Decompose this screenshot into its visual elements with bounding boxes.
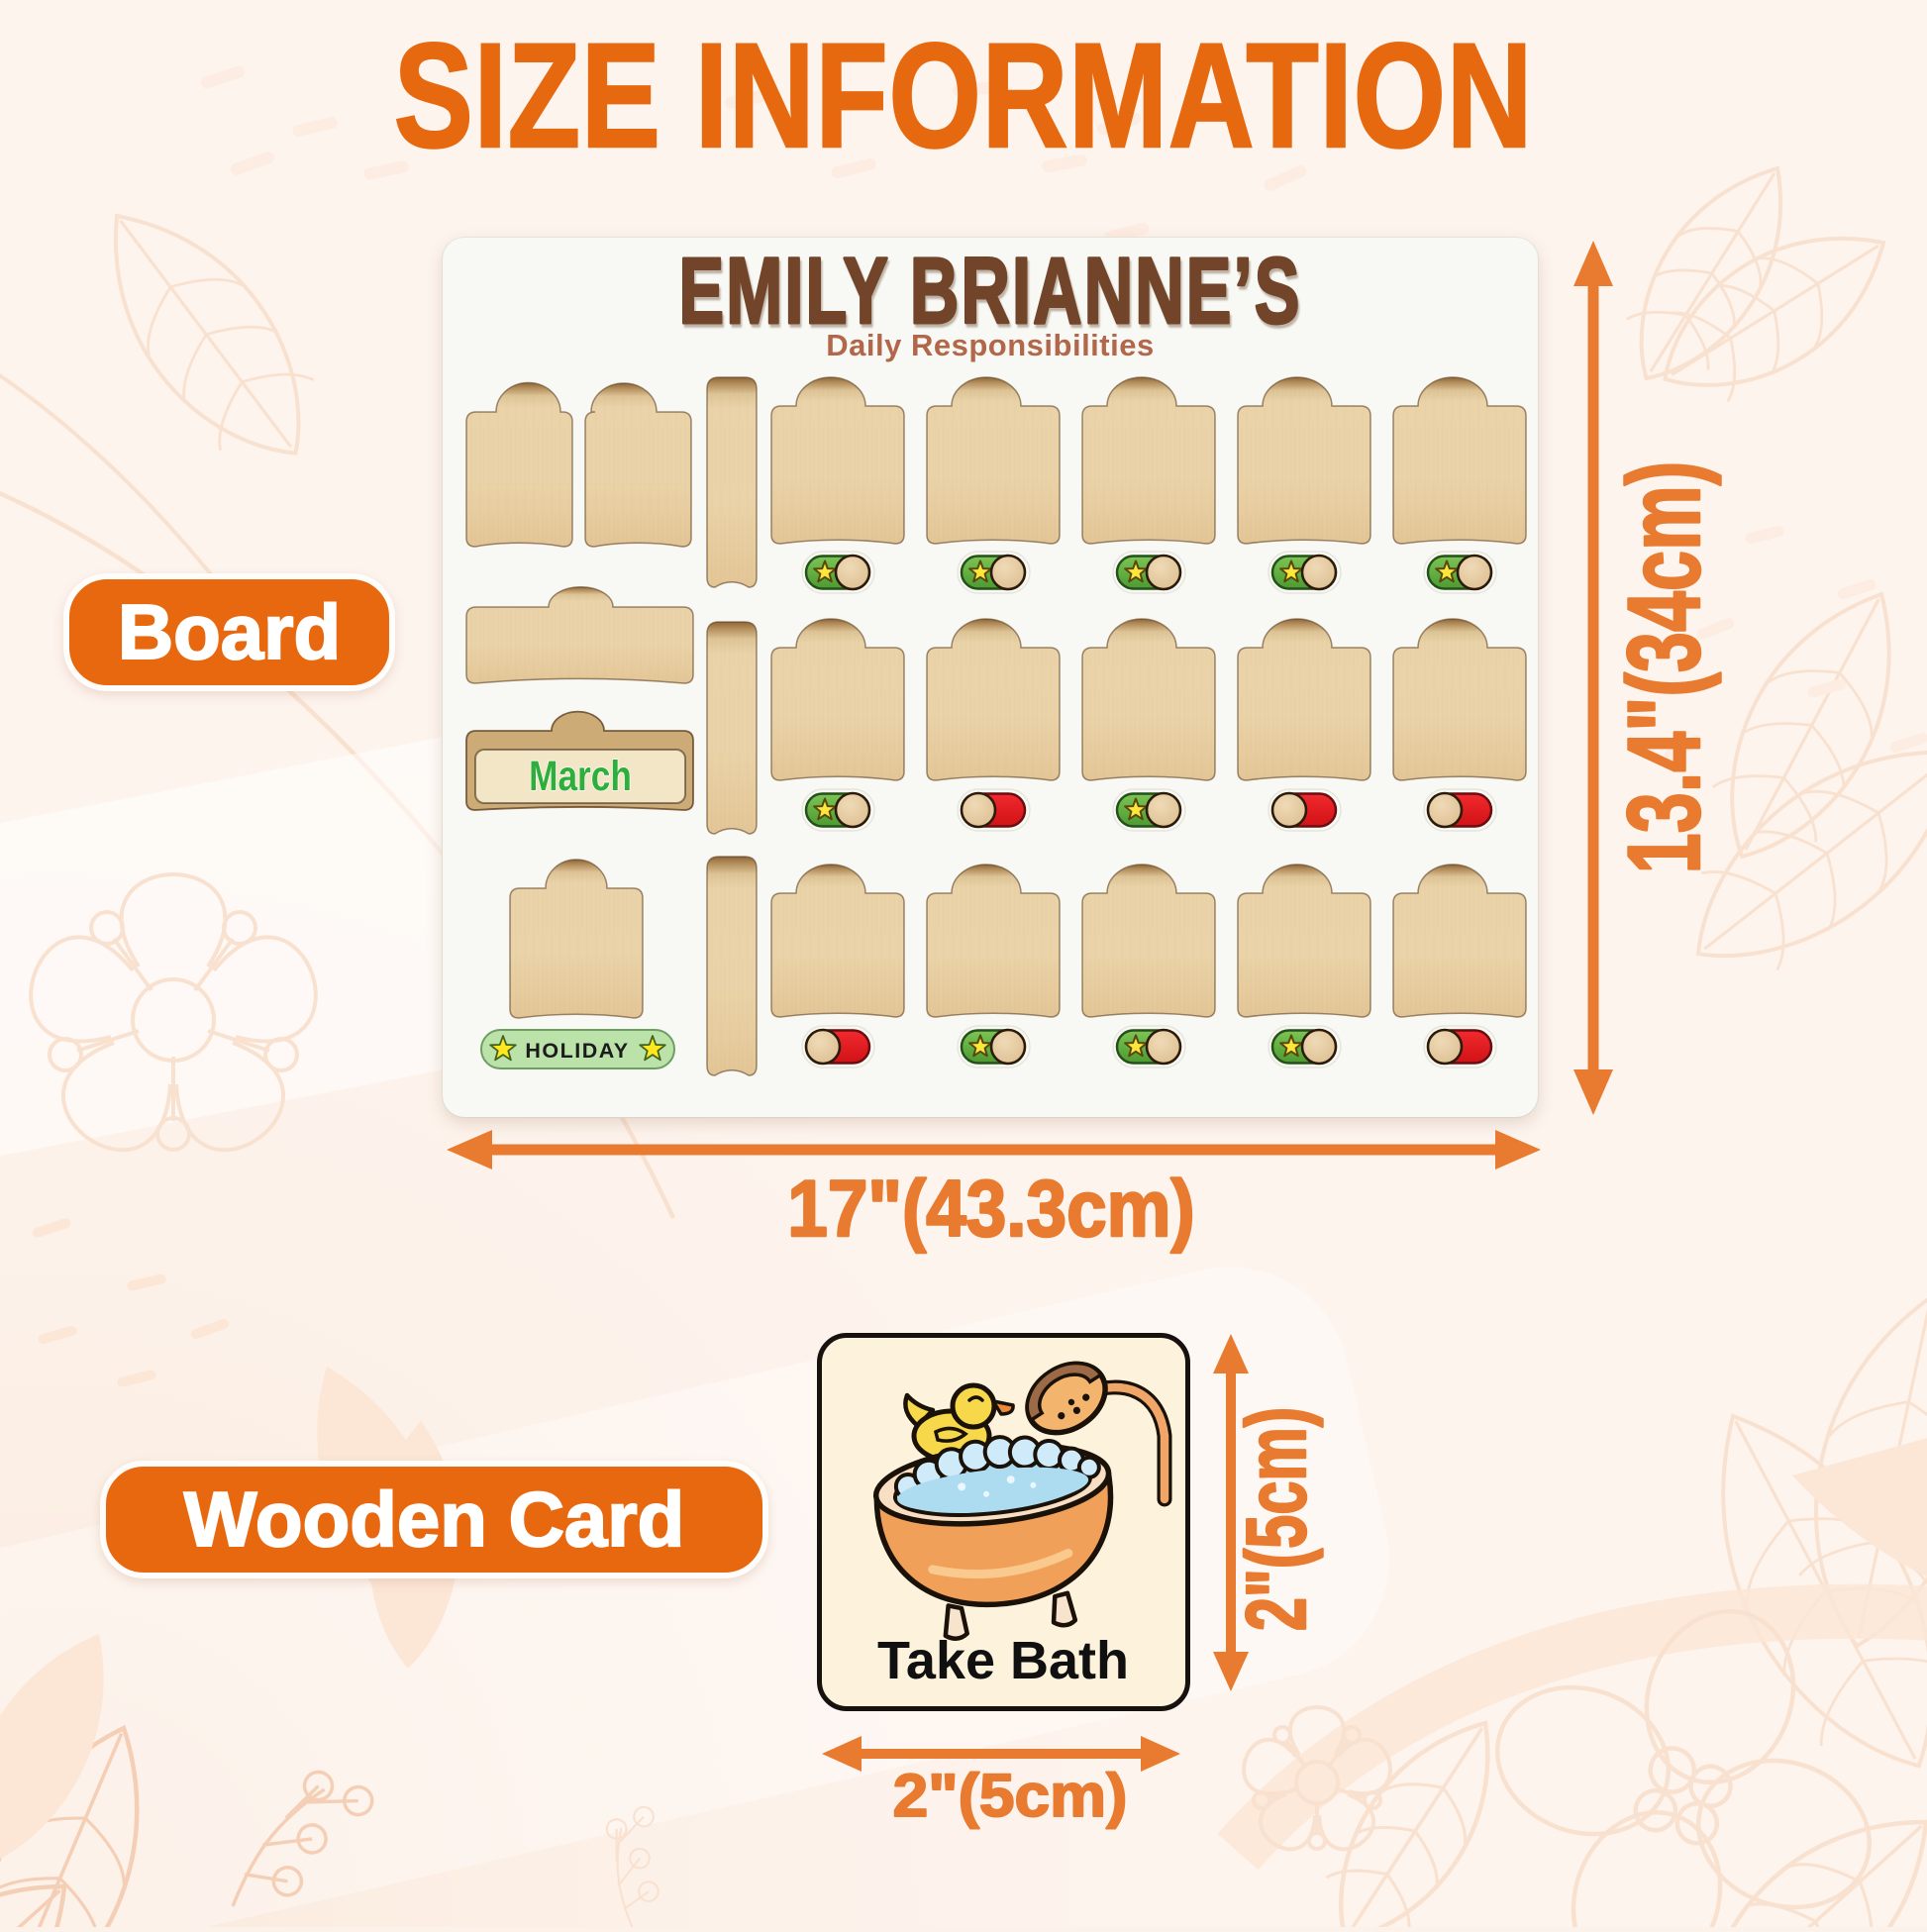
svg-text:March: March [529,753,632,800]
svg-text:Take Bath: Take Bath [877,1631,1129,1690]
svg-text:HOLIDAY: HOLIDAY [525,1039,629,1063]
svg-text:Daily Responsibilities: Daily Responsibilities [826,328,1154,362]
